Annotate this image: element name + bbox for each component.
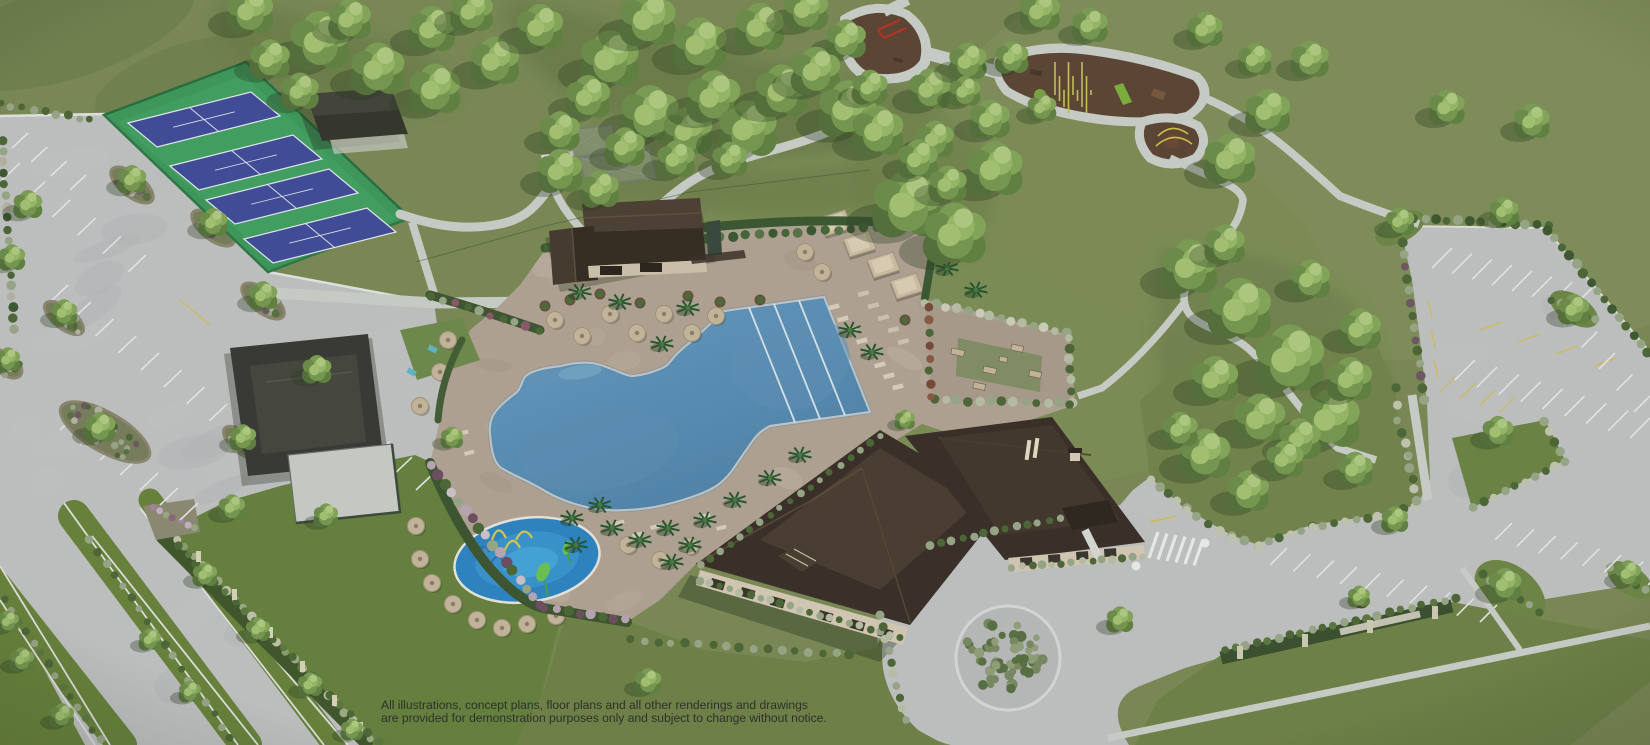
- svg-text:All illustrations, concept pla: All illustrations, concept plans, floor …: [381, 698, 808, 712]
- svg-text:are provided for demonstration: are provided for demonstration purposes …: [381, 711, 827, 725]
